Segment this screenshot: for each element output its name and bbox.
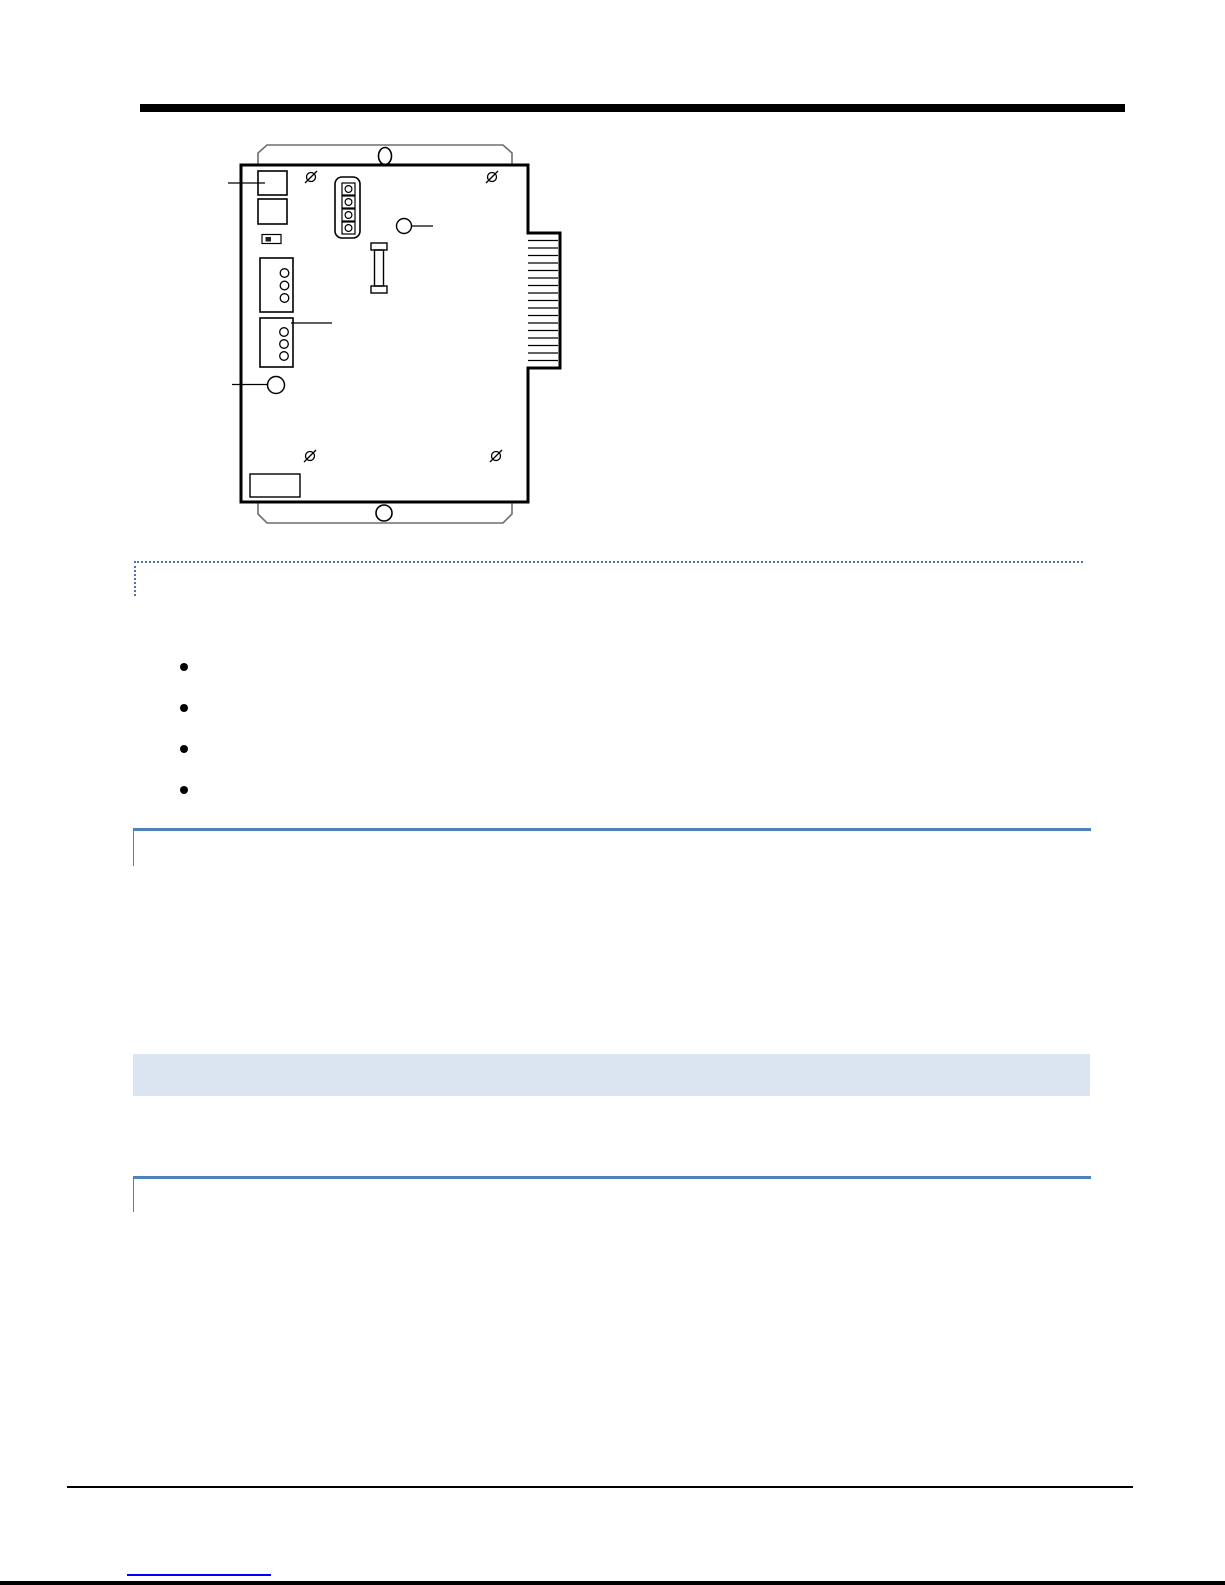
bullet-list	[180, 663, 880, 827]
bullet-item	[180, 704, 880, 745]
bullet-item	[180, 745, 880, 786]
bullet-item	[180, 786, 880, 827]
mounting-flange-bottom	[258, 503, 512, 523]
bullet-dot-icon	[180, 786, 188, 794]
note-box-dotted	[134, 561, 1083, 596]
bullet-dot-icon	[180, 663, 188, 671]
section-rule-2	[133, 1176, 1091, 1212]
table-header-bar	[133, 1054, 1090, 1096]
flange-hole-bottom-icon	[376, 505, 392, 521]
bullet-dot-icon	[180, 704, 188, 712]
flange-hole-top-icon	[379, 148, 392, 165]
bullet-dot-icon	[180, 745, 188, 753]
footer-rule	[67, 1486, 1133, 1488]
board-outline	[241, 165, 560, 502]
document-page	[0, 0, 1225, 1585]
page-bottom-edge	[0, 1581, 1225, 1585]
bullet-item	[180, 663, 880, 704]
footer-link[interactable]	[127, 1560, 271, 1576]
section-rule-1	[133, 828, 1091, 866]
